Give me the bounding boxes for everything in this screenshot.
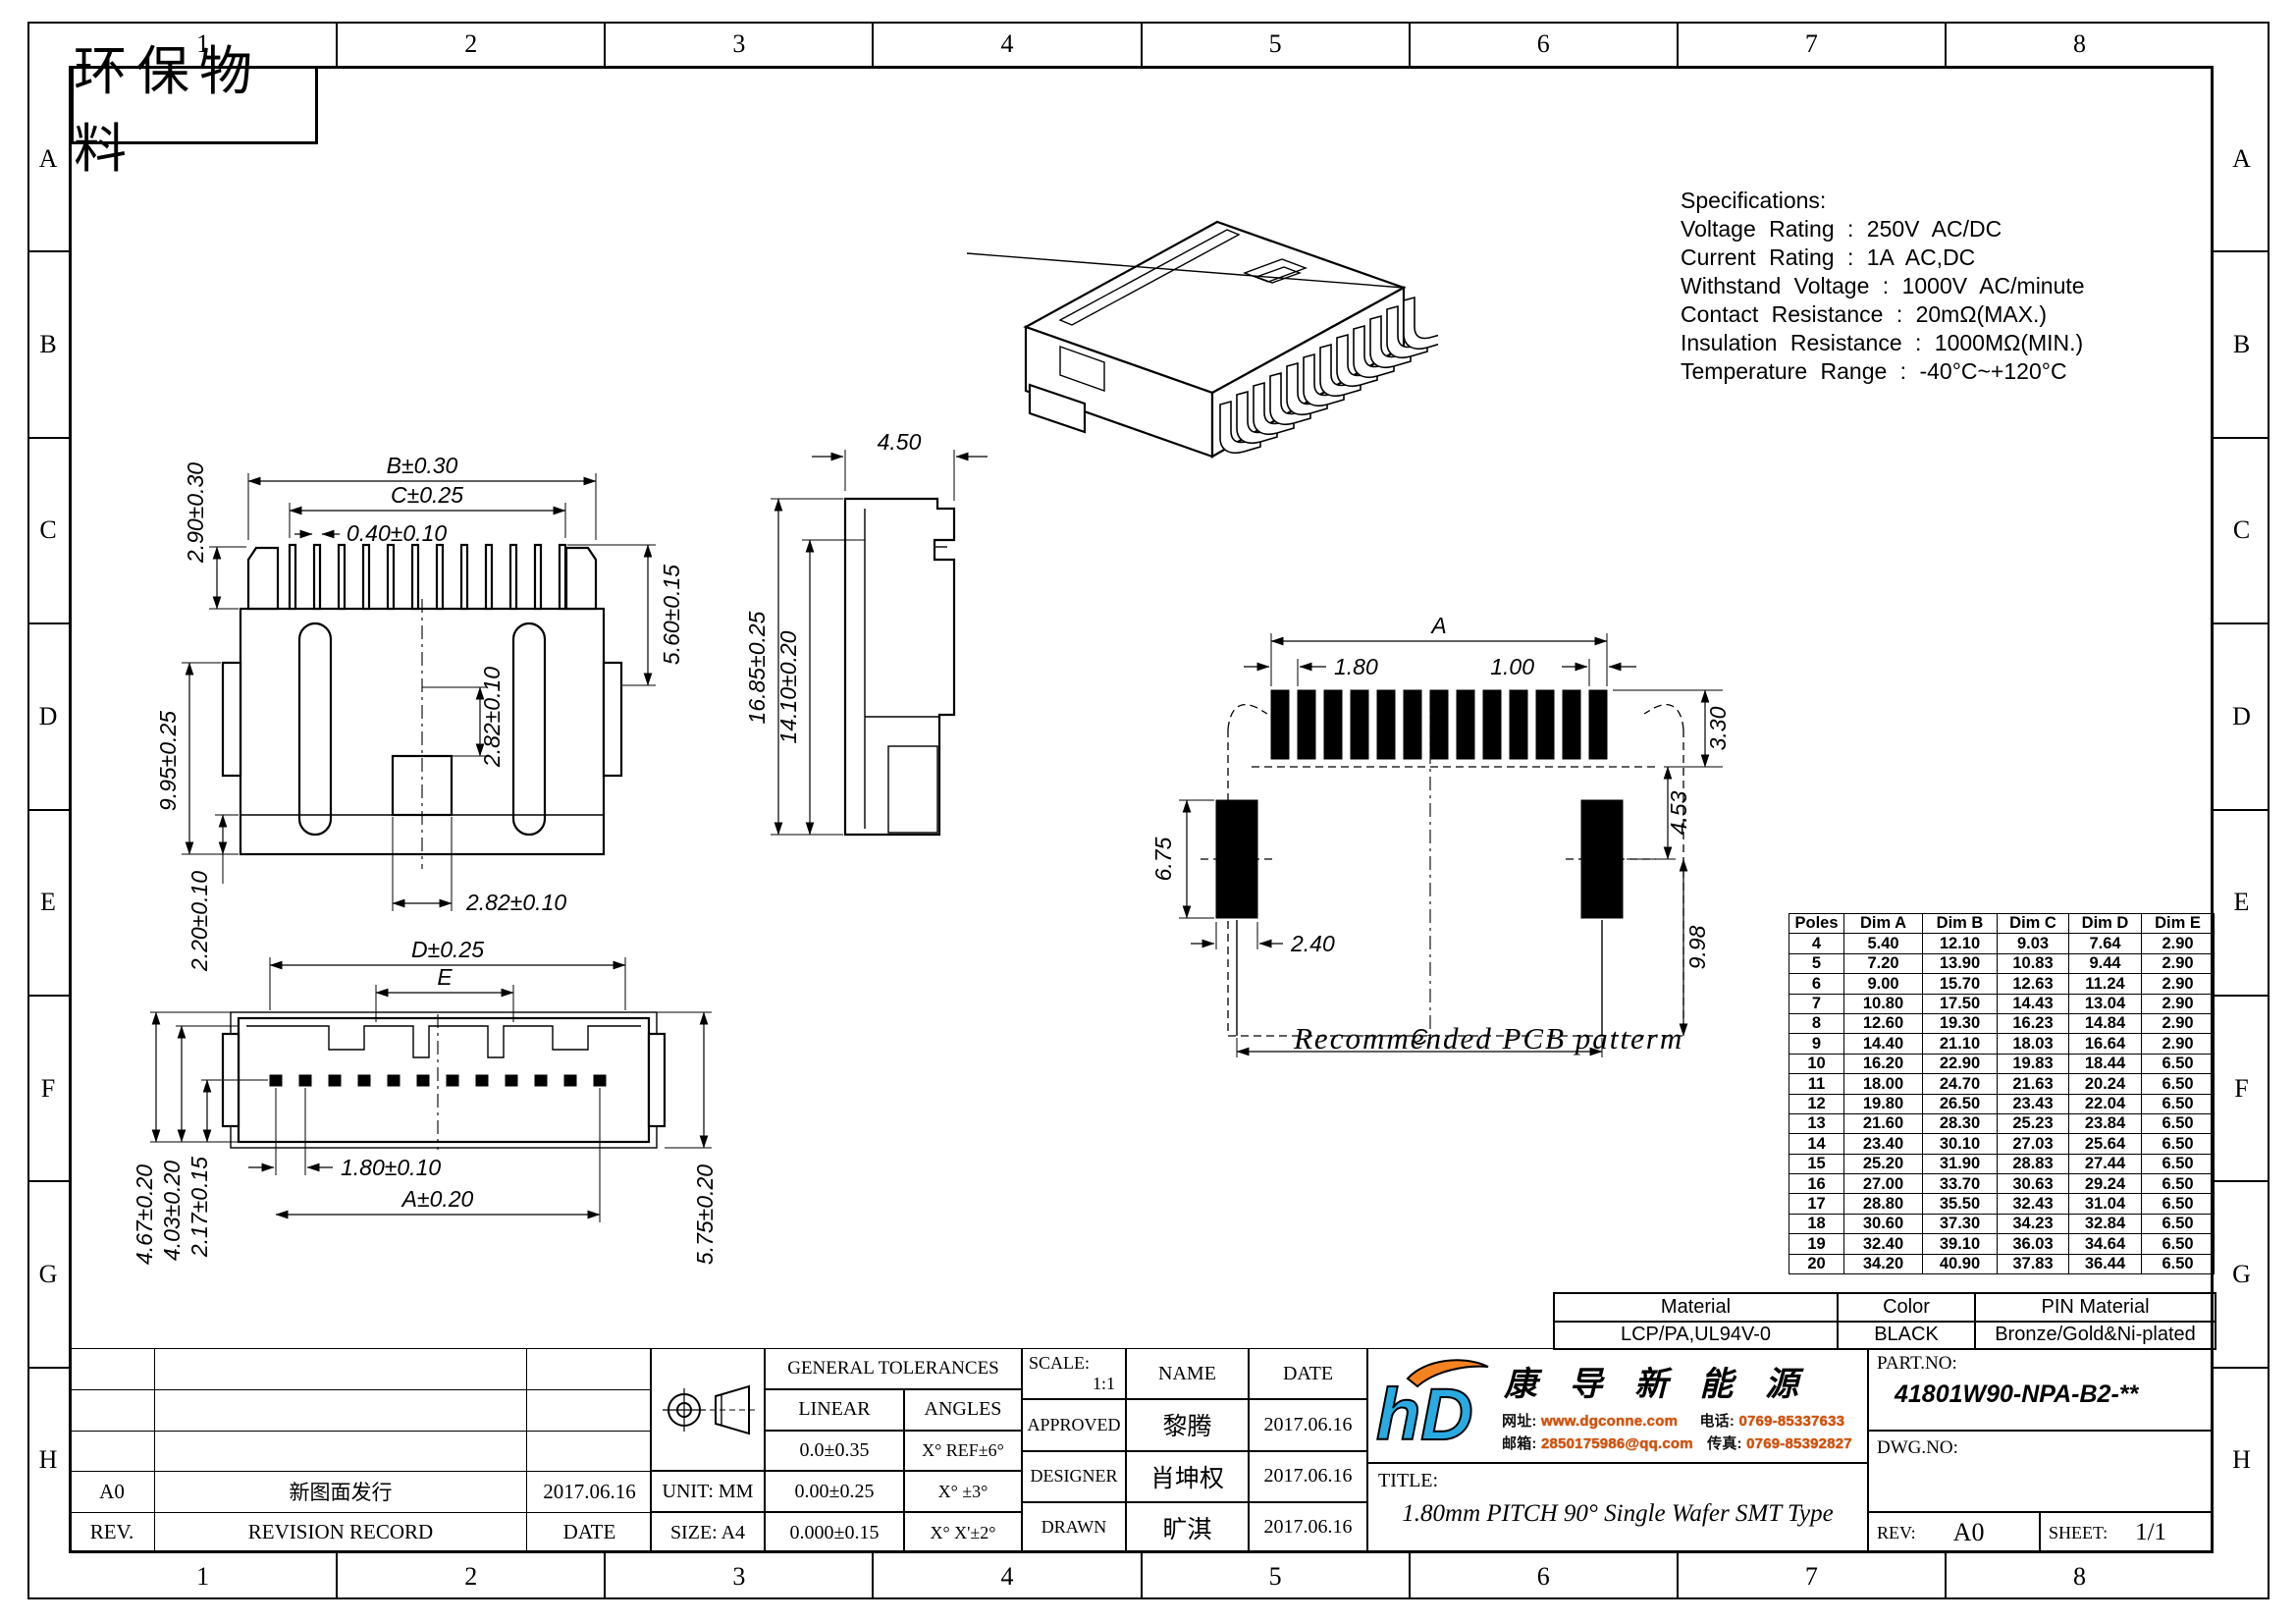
linear-tolerance-3: 0.000±0.15: [765, 1512, 904, 1553]
revision-date-value: 2017.06.16: [526, 1471, 652, 1511]
table-cell: 34.20: [1844, 1254, 1923, 1273]
table-cell: 32.43: [1998, 1194, 2069, 1214]
zone-label-left-G: G: [27, 1181, 69, 1367]
material-table: Material Color PIN Material LCP/PA,UL94V…: [1553, 1292, 2216, 1350]
poles-header-cell: Dim A: [1844, 914, 1923, 934]
table-cell: 28.83: [1998, 1154, 2069, 1173]
zone-tick: [27, 1367, 69, 1369]
company-cell: hD 康 导 新 能 源 网址: www.dgconne.com 电话: 076…: [1367, 1348, 1868, 1463]
rev-cell: REV: A0: [1868, 1512, 2040, 1553]
poles-header-cell: Dim C: [1998, 914, 2069, 934]
svg-text:4.53: 4.53: [1666, 790, 1691, 835]
zone-tick: [1945, 1553, 1947, 1599]
pcb-pads: [1216, 690, 1623, 918]
table-cell: 32.84: [2069, 1214, 2142, 1233]
table-cell: 6.50: [2142, 1074, 2215, 1094]
table-cell: 6.50: [2142, 1113, 2215, 1133]
date-header: DATE: [1249, 1348, 1367, 1399]
specifications-lines: Voltage Rating : 250V AC/DCCurrent Ratin…: [1681, 215, 2085, 386]
drawn-date: 2017.06.16: [1249, 1502, 1367, 1553]
poles-header-cell: Dim B: [1923, 914, 1998, 934]
part-no-cell: PART.NO: 41801W90-NPA-B2-**: [1868, 1348, 2214, 1431]
zone-label-top-6: 6: [1410, 22, 1678, 66]
table-cell: 7.20: [1844, 953, 1923, 973]
zone-tick: [1677, 22, 1679, 66]
zone-tick: [1409, 22, 1411, 66]
zone-label-left-H: H: [27, 1368, 69, 1553]
revision-rev-header: REV.: [70, 1512, 154, 1552]
specifications-title: Specifications:: [1681, 187, 2085, 215]
side-view-body: [845, 499, 954, 835]
zone-label-right-F: F: [2214, 996, 2269, 1181]
table-cell: 31.90: [1923, 1154, 1998, 1173]
zone-label-top-4: 4: [873, 22, 1141, 66]
table-cell: 37.30: [1923, 1214, 1998, 1233]
table-cell: 7.64: [2069, 934, 2142, 953]
pin-material-header: PIN Material: [1975, 1293, 2216, 1322]
table-cell: 5.40: [1844, 934, 1923, 953]
scale-cell: SCALE: 1:1: [1022, 1348, 1126, 1399]
fax-value: 0769-85392827: [1746, 1435, 1852, 1452]
table-cell: 9.44: [2069, 953, 2142, 973]
svg-text:hD: hD: [1376, 1374, 1473, 1455]
zone-label-right-C: C: [2214, 438, 2269, 623]
approved-date: 2017.06.16: [1249, 1399, 1367, 1450]
table-cell: 2.90: [2142, 934, 2215, 953]
spec-line: Insulation Resistance : 1000MΩ(MIN.): [1681, 329, 2085, 357]
table-cell: 5: [1789, 953, 1844, 973]
table-cell: 18.03: [1998, 1034, 2069, 1054]
table-cell: 30.60: [1844, 1214, 1923, 1233]
part-no-value: 41801W90-NPA-B2-**: [1869, 1375, 2138, 1409]
svg-text:4.03±0.20: 4.03±0.20: [159, 1161, 185, 1261]
table-cell: 26.50: [1923, 1094, 1998, 1113]
zone-label-right-E: E: [2214, 810, 2269, 996]
company-name: 康 导 新 能 源: [1504, 1357, 1862, 1405]
zone-tick: [1677, 1553, 1679, 1599]
revision-empty-cell: [70, 1349, 154, 1389]
front-view: B±0.30 C±0.25 0.40±0.10 2.90±0.30 5.60±0…: [113, 422, 731, 987]
pcb-pattern-view: A 1.80 1.00 3.30 4.53 9.98 6.75: [1134, 604, 1782, 1075]
table-cell: 16: [1789, 1174, 1844, 1194]
sheet-value: 1/1: [2135, 1519, 2166, 1546]
zone-tick: [336, 1553, 338, 1599]
spec-line: Temperature Range : -40°C~+120°C: [1681, 357, 2085, 386]
zone-label-right-G: G: [2214, 1181, 2269, 1367]
revision-empty-cell: [70, 1389, 154, 1430]
revision-empty-cell: [526, 1431, 652, 1471]
bottom-view: D±0.25 E 1.80±0.10 A±0.20 4.67±0.20 4.03…: [123, 928, 721, 1267]
svg-text:2.82±0.10: 2.82±0.10: [479, 667, 505, 768]
company-contact-line2: 邮箱: 2850175986@qq.com 传真: 0769-85392827: [1502, 1433, 1852, 1453]
designer-name: 肖坤权: [1126, 1451, 1249, 1502]
table-cell: 6: [1789, 974, 1844, 994]
first-angle-projection-icon: [653, 1351, 763, 1469]
isometric-view: [967, 145, 1438, 474]
table-cell: 8: [1789, 1013, 1844, 1033]
designer-date: 2017.06.16: [1249, 1451, 1367, 1502]
svg-text:A±0.20: A±0.20: [400, 1186, 474, 1212]
zone-label-bottom-5: 5: [1142, 1553, 1410, 1599]
table-cell: 19.30: [1923, 1013, 1998, 1033]
table-cell: 12: [1789, 1094, 1844, 1113]
table-row: 1932.4039.1036.0334.646.50: [1789, 1234, 2215, 1254]
table-cell: 32.40: [1844, 1234, 1923, 1254]
table-row: 57.2013.9010.839.442.90: [1789, 953, 2215, 973]
table-cell: 6.50: [2142, 1154, 2215, 1173]
projection-symbol-cell: [651, 1348, 765, 1471]
revision-record-value: 新图面发行: [154, 1471, 526, 1511]
table-cell: 22.04: [2069, 1094, 2142, 1113]
revision-empty-cell: [154, 1349, 526, 1389]
revision-record-header: REVISION RECORD: [154, 1512, 526, 1552]
tel-value: 0769-85337633: [1738, 1413, 1844, 1430]
zone-tick: [1141, 22, 1143, 66]
zone-tick: [2214, 1367, 2269, 1369]
table-cell: 40.90: [1923, 1254, 1998, 1273]
zone-label-bottom-8: 8: [1946, 1553, 2214, 1599]
zone-label-bottom-1: 1: [69, 1553, 337, 1599]
table-cell: 15: [1789, 1154, 1844, 1173]
zone-label-top-2: 2: [337, 22, 605, 66]
table-cell: 6.50: [2142, 1054, 2215, 1073]
zone-tick: [604, 22, 606, 66]
revision-empty-cell: [526, 1349, 652, 1389]
drawing-title: 1.80mm PITCH 90° Single Wafer SMT Type: [1402, 1500, 1833, 1528]
web-value: www.dgconne.com: [1541, 1413, 1678, 1430]
svg-text:2.90±0.30: 2.90±0.30: [183, 462, 208, 564]
web-label: 网址:: [1502, 1413, 1537, 1430]
table-cell: 34.64: [2069, 1234, 2142, 1254]
table-cell: 30.10: [1923, 1134, 1998, 1154]
table-cell: 14: [1789, 1134, 1844, 1154]
table-cell: 10: [1789, 1054, 1844, 1073]
table-cell: 18.44: [2069, 1054, 2142, 1073]
zone-label-top-8: 8: [1946, 22, 2214, 66]
table-row: 914.4021.1018.0316.642.90: [1789, 1034, 2215, 1054]
table-cell: 24.70: [1923, 1074, 1998, 1094]
table-row: 2034.2040.9037.8336.446.50: [1789, 1254, 2215, 1273]
table-cell: 11.24: [2069, 974, 2142, 994]
table-cell: 6.50: [2142, 1094, 2215, 1113]
table-cell: 27.00: [1844, 1174, 1923, 1194]
name-header: NAME: [1126, 1348, 1249, 1399]
table-row: 1627.0033.7030.6329.246.50: [1789, 1174, 2215, 1194]
table-cell: 31.04: [2069, 1194, 2142, 1214]
zone-label-bottom-3: 3: [605, 1553, 873, 1599]
spec-line: Current Rating : 1A AC,DC: [1681, 243, 2085, 272]
zone-label-bottom-7: 7: [1678, 1553, 1946, 1599]
zone-tick: [872, 22, 874, 66]
table-cell: 23.43: [1998, 1094, 2069, 1113]
table-row: 1830.6037.3034.2332.846.50: [1789, 1214, 2215, 1233]
table-cell: 29.24: [2069, 1174, 2142, 1194]
designer-label: DESIGNER: [1022, 1451, 1126, 1502]
svg-text:9.98: 9.98: [1684, 925, 1710, 969]
table-cell: 4: [1789, 934, 1844, 953]
zone-tick: [604, 1553, 606, 1599]
table-cell: 17.50: [1923, 994, 1998, 1013]
rev-label: REV:: [1869, 1523, 1916, 1543]
poles-header-cell: Dim E: [2142, 914, 2215, 934]
zone-tick: [2214, 437, 2269, 439]
table-cell: 18.00: [1844, 1074, 1923, 1094]
zone-tick: [1945, 22, 1947, 66]
zone-tick: [2214, 622, 2269, 624]
title-cell: TITLE: 1.80mm PITCH 90° Single Wafer SMT…: [1367, 1463, 1868, 1553]
table-cell: 20.24: [2069, 1074, 2142, 1094]
zone-label-top-7: 7: [1678, 22, 1946, 66]
table-cell: 23.84: [2069, 1113, 2142, 1133]
table-cell: 14.40: [1844, 1034, 1923, 1054]
scale-label: SCALE:: [1029, 1353, 1090, 1374]
zone-label-top-3: 3: [605, 22, 873, 66]
table-row: 1118.0024.7021.6320.246.50: [1789, 1074, 2215, 1094]
table-cell: 16.23: [1998, 1013, 2069, 1033]
angle-tolerance-2: X° ±3°: [904, 1471, 1022, 1512]
table-cell: 28.30: [1923, 1113, 1998, 1133]
table-cell: 14.84: [2069, 1013, 2142, 1033]
table-cell: 18: [1789, 1214, 1844, 1233]
table-cell: 27.03: [1998, 1134, 2069, 1154]
zone-label-left-B: B: [27, 251, 69, 437]
zone-tick: [1141, 1553, 1143, 1599]
color-header: Color: [1838, 1293, 1975, 1322]
table-cell: 22.90: [1923, 1054, 1998, 1073]
drawing-sheet: 1122334455667788AABBCCDDEEFFGGHH 环保物料 Sp…: [0, 0, 2296, 1623]
front-view-body: [223, 545, 621, 869]
size-cell: SIZE: A4: [651, 1512, 765, 1553]
zone-label-left-C: C: [27, 438, 69, 623]
svg-text:5.60±0.15: 5.60±0.15: [659, 565, 684, 665]
table-cell: 36.03: [1998, 1234, 2069, 1254]
table-row: 1423.4030.1027.0325.646.50: [1789, 1134, 2215, 1154]
table-row: 1219.8026.5023.4322.046.50: [1789, 1094, 2215, 1113]
spec-line: Contact Resistance : 20mΩ(MAX.): [1681, 300, 2085, 329]
table-cell: 12.63: [1998, 974, 2069, 994]
dwg-no-cell: DWG.NO:: [1868, 1431, 2214, 1512]
zone-label-left-D: D: [27, 623, 69, 809]
table-row: 710.8017.5014.4313.042.90: [1789, 994, 2215, 1013]
table-cell: 33.70: [1923, 1174, 1998, 1194]
zone-tick: [872, 1553, 874, 1599]
angle-tolerance-1: X° REF±6°: [904, 1431, 1022, 1472]
table-row: 1321.6028.3025.2323.846.50: [1789, 1113, 2215, 1133]
zone-label-right-H: H: [2214, 1368, 2269, 1553]
general-tolerances-header: GENERAL TOLERANCES: [765, 1348, 1022, 1389]
linear-header: LINEAR: [765, 1389, 904, 1431]
table-cell: 13.90: [1923, 953, 1998, 973]
table-cell: 23.40: [1844, 1134, 1923, 1154]
table-cell: 9.03: [1998, 934, 2069, 953]
table-cell: 10.80: [1844, 994, 1923, 1013]
table-cell: 39.10: [1923, 1234, 1998, 1254]
revision-empty-cell: [154, 1431, 526, 1471]
material-header-row: Material Color PIN Material: [1554, 1293, 2216, 1322]
svg-text:2.82±0.10: 2.82±0.10: [465, 890, 566, 915]
approved-name: 黎腾: [1126, 1399, 1249, 1450]
table-cell: 36.44: [2069, 1254, 2142, 1273]
sheet-cell: SHEET: 1/1: [2040, 1512, 2214, 1553]
poles-table-header: PolesDim ADim BDim CDim DDim E: [1789, 914, 2215, 934]
table-cell: 13.04: [2069, 994, 2142, 1013]
zone-label-left-A: A: [27, 66, 69, 251]
table-cell: 12.60: [1844, 1013, 1923, 1033]
zone-label-left-E: E: [27, 810, 69, 996]
table-cell: 2.90: [2142, 1013, 2215, 1033]
table-cell: 35.50: [1923, 1194, 1998, 1214]
scale-value: 1:1: [1093, 1374, 1125, 1394]
table-cell: 11: [1789, 1074, 1844, 1094]
poles-header-cell: Dim D: [2069, 914, 2142, 934]
table-cell: 6.50: [2142, 1254, 2215, 1273]
zone-tick: [27, 995, 69, 997]
zone-label-right-A: A: [2214, 66, 2269, 251]
zone-tick: [27, 250, 69, 252]
spec-line: Withstand Voltage : 1000V AC/minute: [1681, 272, 2085, 300]
table-cell: 7: [1789, 994, 1844, 1013]
table-cell: 15.70: [1923, 974, 1998, 994]
svg-text:14.10±0.20: 14.10±0.20: [775, 630, 801, 743]
zone-label-bottom-2: 2: [337, 1553, 605, 1599]
revision-empty-cell: [70, 1431, 154, 1471]
svg-text:1.80: 1.80: [1334, 654, 1378, 679]
table-cell: 2.90: [2142, 1034, 2215, 1054]
table-cell: 14.43: [1998, 994, 2069, 1013]
zone-tick: [2214, 250, 2269, 252]
revision-empty-cell: [526, 1389, 652, 1430]
svg-text:E: E: [437, 964, 453, 990]
drawn-label: DRAWN: [1022, 1502, 1126, 1553]
revision-record-grid: A0 新图面发行 2017.06.16 REV. REVISION RECORD…: [69, 1348, 651, 1553]
eco-material-stamp: 环保物料: [71, 66, 318, 144]
table-cell: 19.80: [1844, 1094, 1923, 1113]
sheet-label: SHEET:: [2041, 1523, 2108, 1543]
zone-tick: [2214, 1180, 2269, 1182]
svg-text:16.85±0.25: 16.85±0.25: [744, 611, 770, 724]
table-row: 1525.2031.9028.8327.446.50: [1789, 1154, 2215, 1173]
table-cell: 6.50: [2142, 1134, 2215, 1154]
table-cell: 2.90: [2142, 953, 2215, 973]
svg-text:5.75±0.20: 5.75±0.20: [692, 1164, 718, 1265]
linear-tolerance-1: 0.0±0.35: [765, 1431, 904, 1472]
table-cell: 2.90: [2142, 994, 2215, 1013]
svg-text:2.17±0.15: 2.17±0.15: [187, 1157, 212, 1258]
table-cell: 21.60: [1844, 1113, 1923, 1133]
svg-text:0.40±0.10: 0.40±0.10: [347, 520, 447, 546]
svg-text:B±0.30: B±0.30: [387, 453, 458, 478]
zone-label-top-5: 5: [1142, 22, 1410, 66]
table-row: 1016.2022.9019.8318.446.50: [1789, 1054, 2215, 1073]
company-logo-icon: hD: [1374, 1353, 1500, 1459]
zone-label-right-B: B: [2214, 251, 2269, 437]
table-cell: 25.23: [1998, 1113, 2069, 1133]
table-cell: 2.90: [2142, 974, 2215, 994]
table-cell: 19: [1789, 1234, 1844, 1254]
pin-material-value: Bronze/Gold&Ni-plated: [1975, 1322, 2216, 1350]
table-cell: 6.50: [2142, 1214, 2215, 1233]
mail-value: 2850175986@qq.com: [1541, 1435, 1693, 1452]
svg-text:1.00: 1.00: [1490, 654, 1534, 679]
zone-label-left-F: F: [27, 996, 69, 1181]
spec-line: Voltage Rating : 250V AC/DC: [1681, 215, 2085, 243]
svg-text:A: A: [1429, 613, 1446, 638]
table-cell: 21.10: [1923, 1034, 1998, 1054]
table-cell: 20: [1789, 1254, 1844, 1273]
zone-tick: [2214, 809, 2269, 811]
table-cell: 12.10: [1923, 934, 1998, 953]
approved-label: APPROVED: [1022, 1399, 1126, 1450]
company-contact-line1: 网址: www.dgconne.com 电话: 0769-85337633: [1502, 1410, 1844, 1431]
zone-label-right-D: D: [2214, 623, 2269, 809]
linear-tolerance-2: 0.00±0.25: [765, 1471, 904, 1512]
specifications-block: Specifications: Voltage Rating : 250V AC…: [1681, 187, 2085, 386]
material-value: LCP/PA,UL94V-0: [1554, 1322, 1838, 1350]
bottom-view-body: [223, 1012, 665, 1150]
revision-date-header: DATE: [526, 1512, 652, 1552]
material-value-row: LCP/PA,UL94V-0 BLACK Bronze/Gold&Ni-plat…: [1554, 1322, 2216, 1350]
poles-header-cell: Poles: [1789, 914, 1844, 934]
zone-tick: [27, 437, 69, 439]
table-cell: 6.50: [2142, 1194, 2215, 1214]
angles-header: ANGLES: [904, 1389, 1022, 1431]
table-cell: 9: [1789, 1034, 1844, 1054]
zone-tick: [336, 22, 338, 66]
poles-table-body: 45.4012.109.037.642.9057.2013.9010.839.4…: [1789, 934, 2215, 1274]
table-row: 69.0015.7012.6311.242.90: [1789, 974, 2215, 994]
zone-tick: [27, 809, 69, 811]
unit-cell: UNIT: MM: [651, 1471, 765, 1512]
svg-text:1.80±0.10: 1.80±0.10: [341, 1155, 441, 1180]
svg-text:9.95±0.25: 9.95±0.25: [155, 711, 181, 811]
svg-text:3.30: 3.30: [1705, 706, 1731, 750]
table-cell: 6.50: [2142, 1234, 2215, 1254]
table-cell: 16.64: [2069, 1034, 2142, 1054]
poles-header-row: PolesDim ADim BDim CDim DDim E: [1789, 914, 2215, 934]
title-label: TITLE:: [1368, 1464, 1438, 1492]
fax-label: 传真:: [1707, 1435, 1742, 1452]
svg-text:4.50: 4.50: [878, 429, 922, 455]
table-cell: 25.20: [1844, 1154, 1923, 1173]
table-cell: 19.83: [1998, 1054, 2069, 1073]
svg-text:D±0.25: D±0.25: [411, 937, 484, 962]
angle-tolerance-3: X° X'±2°: [904, 1512, 1022, 1553]
table-row: 1728.8035.5032.4331.046.50: [1789, 1194, 2215, 1214]
zone-tick: [27, 1180, 69, 1182]
part-no-label: PART.NO:: [1869, 1349, 1957, 1375]
table-cell: 16.20: [1844, 1054, 1923, 1073]
table-cell: 28.80: [1844, 1194, 1923, 1214]
revision-empty-cell: [154, 1389, 526, 1430]
table-cell: 37.83: [1998, 1254, 2069, 1273]
revision-rev-value: A0: [70, 1471, 154, 1511]
pcb-pattern-caption: Recommended PCB patterm: [1294, 1021, 1683, 1056]
svg-text:C±0.25: C±0.25: [391, 482, 463, 508]
svg-text:4.67±0.20: 4.67±0.20: [132, 1164, 157, 1265]
poles-dimension-table: PolesDim ADim BDim CDim DDim E 45.4012.1…: [1789, 913, 2215, 1274]
table-row: 45.4012.109.037.642.90: [1789, 934, 2215, 953]
table-cell: 21.63: [1998, 1074, 2069, 1094]
zone-tick: [1409, 1553, 1411, 1599]
table-cell: 30.63: [1998, 1174, 2069, 1194]
rev-value: A0: [1953, 1518, 1985, 1547]
table-cell: 25.64: [2069, 1134, 2142, 1154]
zone-label-bottom-4: 4: [873, 1553, 1141, 1599]
table-cell: 17: [1789, 1194, 1844, 1214]
drawn-name: 旷淇: [1126, 1502, 1249, 1553]
table-cell: 9.00: [1844, 974, 1923, 994]
table-cell: 6.50: [2142, 1174, 2215, 1194]
